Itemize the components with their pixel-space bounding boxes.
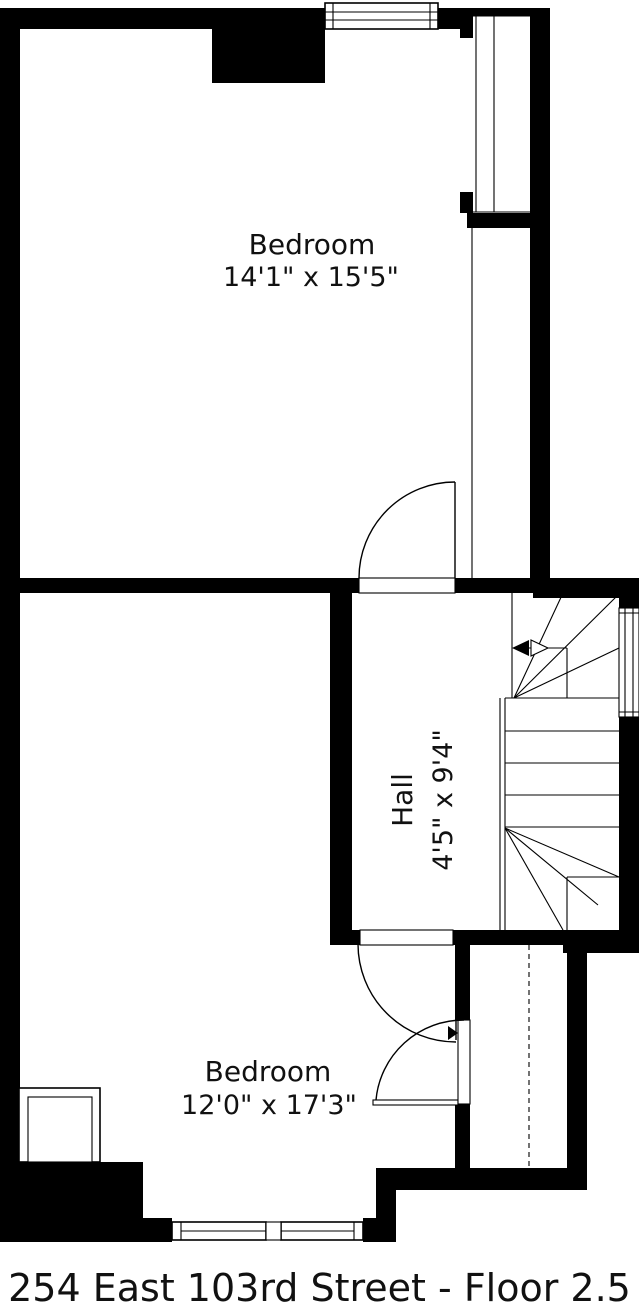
door-bedroom-2 [358, 930, 456, 1042]
window-bottom-left [172, 1222, 266, 1240]
chimney-block [212, 29, 325, 83]
wall-closet-left-top [455, 945, 470, 1020]
wall-below-nook [467, 213, 550, 228]
wall-bottom-left-mass [0, 1162, 172, 1242]
stair-winder-line [505, 828, 563, 930]
wall-nook-stub-bottom [460, 192, 473, 213]
window-stair [619, 608, 639, 717]
window-frame [619, 608, 639, 717]
wall-hall-bottom-right [453, 930, 563, 945]
closet-box-inner [28, 1097, 92, 1162]
room-label-bedroom-1: Bedroom [249, 228, 376, 261]
door-closed-line [373, 1100, 458, 1105]
wall-mid-left [0, 578, 359, 593]
door-closet [373, 1020, 470, 1105]
wall-left-outer [0, 8, 20, 1242]
floor-plan-caption: 254 East 103rd Street - Floor 2.5 [0, 1269, 639, 1307]
staircase [500, 593, 620, 930]
room-dims-bedroom-2: 12'0" x 17'3" [181, 1090, 357, 1121]
wall-hall-left [330, 593, 352, 945]
door-threshold [359, 578, 455, 593]
wall-bottom-right-vertical [376, 1172, 396, 1220]
door-leaf-panel [458, 1020, 470, 1104]
wall-nook-stub-top [460, 8, 473, 38]
room-label-hall: Hall [386, 773, 419, 827]
door-swing-arc [358, 944, 456, 1042]
wall-closet-right [567, 943, 587, 1190]
door-swing-arc [359, 482, 455, 578]
stair-direction-arrow-icon [512, 640, 529, 656]
window-bottom-right [281, 1222, 363, 1240]
room-label-bedroom-2: Bedroom [205, 1055, 332, 1088]
wall-mid-right-stub [455, 578, 533, 593]
window-top [325, 3, 438, 29]
window-nook-right [473, 16, 532, 212]
door-bedroom-1 [359, 482, 455, 593]
window-mullion [266, 1222, 281, 1240]
door-threshold [360, 930, 453, 945]
wall-bottom-right-piece [363, 1218, 396, 1242]
floor-plan: Bedroom 14'1" x 15'5" Hall 4'5" x 9'4" B… [0, 0, 639, 1308]
wall-closet-bottom [376, 1168, 587, 1190]
floor-plan-drawing: Bedroom 14'1" x 15'5" Hall 4'5" x 9'4" B… [0, 0, 639, 1308]
window-frame [325, 3, 438, 29]
wall-right-upper [530, 8, 550, 580]
wall-closet-left-bottom [455, 1103, 470, 1170]
wall-hall-bottom-left [330, 930, 360, 945]
room-dims-hall: 4'5" x 9'4" [428, 729, 459, 871]
wall-top-left [0, 8, 325, 29]
room-labels: Bedroom 14'1" x 15'5" Hall 4'5" x 9'4" B… [181, 228, 459, 1121]
wall-stair-right-top [619, 593, 639, 608]
wall-stair-right-bottom [619, 717, 639, 953]
misc [19, 228, 529, 1168]
stair-winder-line [505, 828, 598, 905]
room-dims-bedroom-1: 14'1" x 15'5" [223, 262, 399, 293]
stair-winder-line [505, 828, 619, 877]
